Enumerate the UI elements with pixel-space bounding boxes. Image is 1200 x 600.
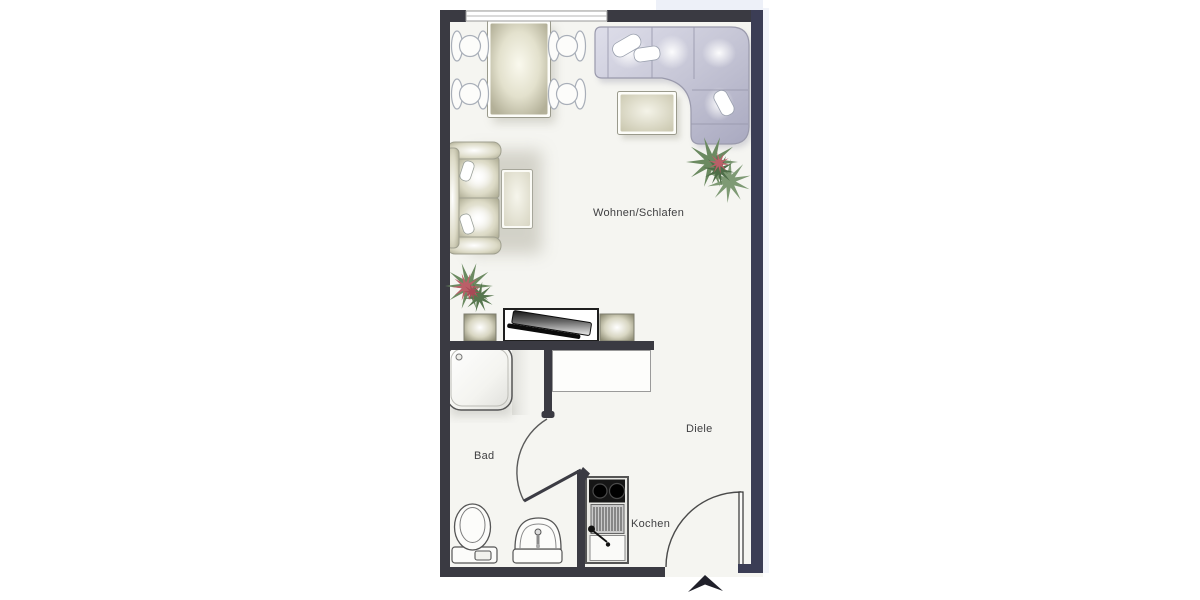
floor-plan: Wohnen/Schlafen Bad Diele Kochen [0, 0, 1200, 600]
exterior-wall [440, 567, 665, 577]
exterior-wall [738, 564, 763, 573]
dining-chair [549, 31, 586, 61]
burner [593, 484, 607, 498]
room-label-living-sleeping: Wohnen/Schlafen [593, 207, 684, 219]
speaker [464, 314, 496, 341]
loveseat [446, 142, 501, 254]
exterior-wall [607, 10, 763, 22]
scan-artifact [763, 8, 769, 573]
tv-lowboard [504, 309, 598, 341]
side-table [502, 170, 533, 229]
room-label-hallway: Diele [686, 423, 713, 435]
door-jamb [542, 411, 555, 418]
floor-plan-drawing: Wohnen/Schlafen Bad Diele Kochen [0, 0, 1200, 600]
dining-table [488, 21, 551, 118]
shower [447, 345, 530, 415]
room-label-bathroom: Bad [474, 450, 494, 462]
burner [610, 484, 625, 499]
shower-drain [456, 354, 462, 360]
interior-wall [544, 350, 552, 418]
window [466, 11, 607, 21]
dining-chair [549, 79, 586, 109]
kitchen-sink [590, 536, 625, 561]
flush-box [475, 551, 491, 560]
interior-wall [443, 341, 654, 350]
kitchenette-stove-sink [586, 477, 628, 563]
room-label-kitchen: Kochen [631, 518, 670, 530]
door-leaf [739, 492, 743, 567]
entrance-arrow-icon [688, 575, 723, 592]
interior-wall [577, 470, 585, 567]
dining-chair [452, 31, 489, 61]
exterior-wall [440, 10, 450, 577]
speaker [600, 314, 634, 341]
drainer [591, 505, 624, 534]
coffee-table [618, 92, 677, 135]
exterior-wall [751, 10, 763, 573]
scan-artifact [656, 0, 763, 10]
faucet [535, 529, 541, 535]
dining-chair [452, 79, 489, 109]
wardrobe [553, 351, 651, 392]
